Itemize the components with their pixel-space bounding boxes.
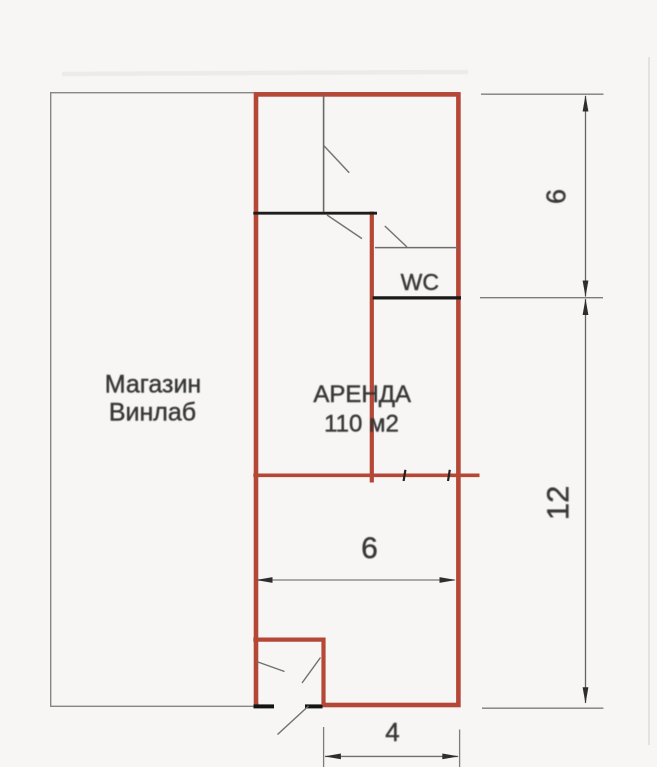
svg-text:АРЕНДА: АРЕНДА: [313, 381, 411, 408]
svg-text:110 м2: 110 м2: [324, 410, 399, 437]
svg-text:12: 12: [540, 486, 575, 520]
svg-text:Винлаб: Винлаб: [109, 399, 196, 427]
svg-text:Магазин: Магазин: [105, 371, 201, 399]
svg-text:6: 6: [541, 189, 571, 204]
svg-text:6: 6: [361, 532, 378, 565]
svg-text:WC: WC: [401, 269, 439, 295]
svg-text:4: 4: [385, 717, 399, 747]
